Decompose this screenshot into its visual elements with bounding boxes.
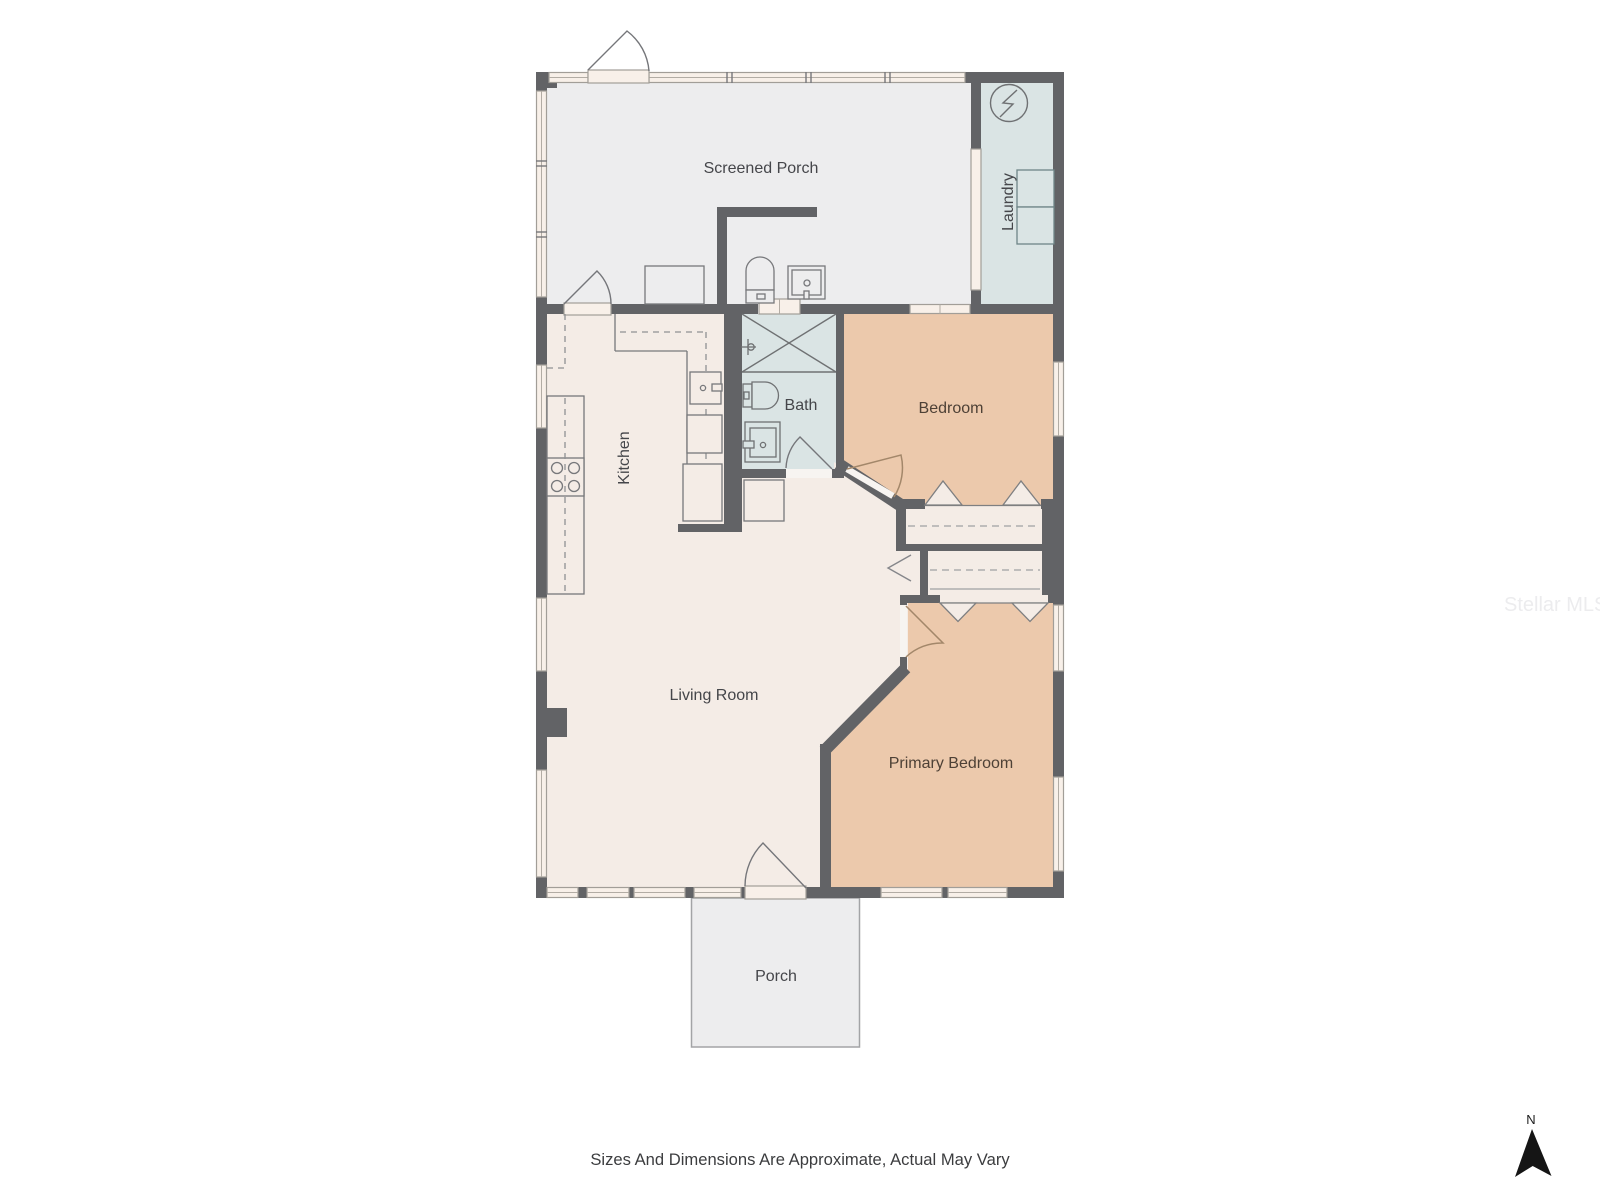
svg-text:Bedroom: Bedroom <box>919 400 984 417</box>
svg-text:Bath: Bath <box>785 397 818 414</box>
svg-text:Stellar MLS: Stellar MLS <box>1504 594 1600 616</box>
svg-text:Sizes And Dimensions Are Appro: Sizes And Dimensions Are Approximate, Ac… <box>590 1150 1010 1169</box>
svg-text:N: N <box>1526 1112 1535 1127</box>
svg-text:Laundry: Laundry <box>1000 173 1017 231</box>
svg-text:Living Room: Living Room <box>670 687 759 704</box>
svg-text:Kitchen: Kitchen <box>616 431 633 484</box>
svg-text:Primary Bedroom: Primary Bedroom <box>889 755 1013 772</box>
svg-text:Screened Porch: Screened Porch <box>704 160 819 177</box>
svg-text:Porch: Porch <box>755 968 797 985</box>
